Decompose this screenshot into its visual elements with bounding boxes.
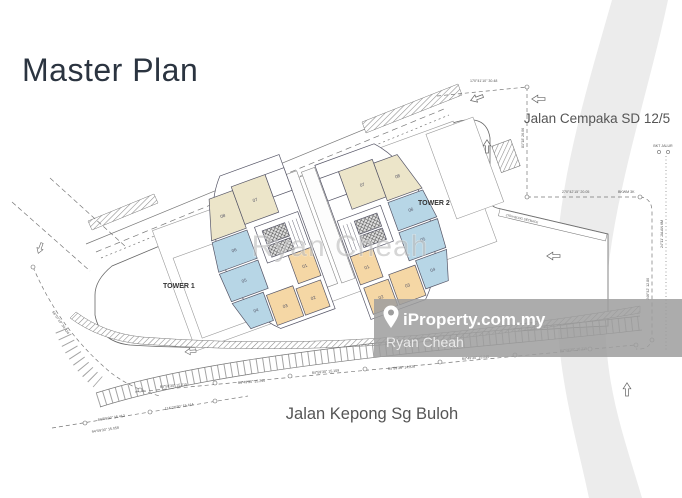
dim-label: 84°59'30" 14.226 xyxy=(388,365,416,371)
dim-label: 94°09'30" 15.058 xyxy=(92,426,120,434)
dim-label: 24°11' JALAN 6M xyxy=(660,220,664,248)
traffic-arrow xyxy=(185,348,197,355)
dim-label: 114°28'30" 15.414 xyxy=(165,402,194,411)
road-hatch-strip xyxy=(88,194,158,230)
road-label-jalan-kepong: Jalan Kepong Sg Buloh xyxy=(286,405,458,423)
iproperty-watermark-band: iProperty.com.my Ryan Cheah xyxy=(374,299,682,357)
dim-label: 84°49'30" 15.240 xyxy=(238,379,266,385)
tower2-label: TOWER 2 xyxy=(418,200,450,207)
guard-house xyxy=(492,139,520,172)
traffic-arrow xyxy=(469,92,484,104)
dim-label: 246°42' 12.80 xyxy=(646,278,650,300)
traffic-arrow xyxy=(623,383,631,396)
tower1-label: TOWER 1 xyxy=(163,283,195,290)
dim-label: 270°42'15" 20.05 xyxy=(562,190,589,194)
agent-watermark-center: Ryan Cheah xyxy=(252,230,429,263)
dim-label: 81°18' 26.06 xyxy=(521,128,525,148)
dim-label: 84°59'30" 15.412 xyxy=(98,414,126,422)
agent-watermark-band: Ryan Cheah xyxy=(386,334,464,350)
dim-label: 170°41'10" 30.48 xyxy=(470,79,497,83)
traffic-arrow xyxy=(35,242,45,255)
road-label-jalan-cempaka: Jalan Cempaka SD 12/5 xyxy=(524,111,670,126)
dim-label: BKWM 3K xyxy=(618,190,635,194)
site-plan-drawing: 66°07'10" 34.424 170°41'10" 30.48 81°18'… xyxy=(0,0,682,498)
brand-watermark: iProperty.com.my xyxy=(403,310,546,329)
dim-label: BKT JALUR xyxy=(653,144,673,148)
masterplan-image: Master Plan xyxy=(0,0,682,498)
traffic-arrow xyxy=(532,95,545,103)
